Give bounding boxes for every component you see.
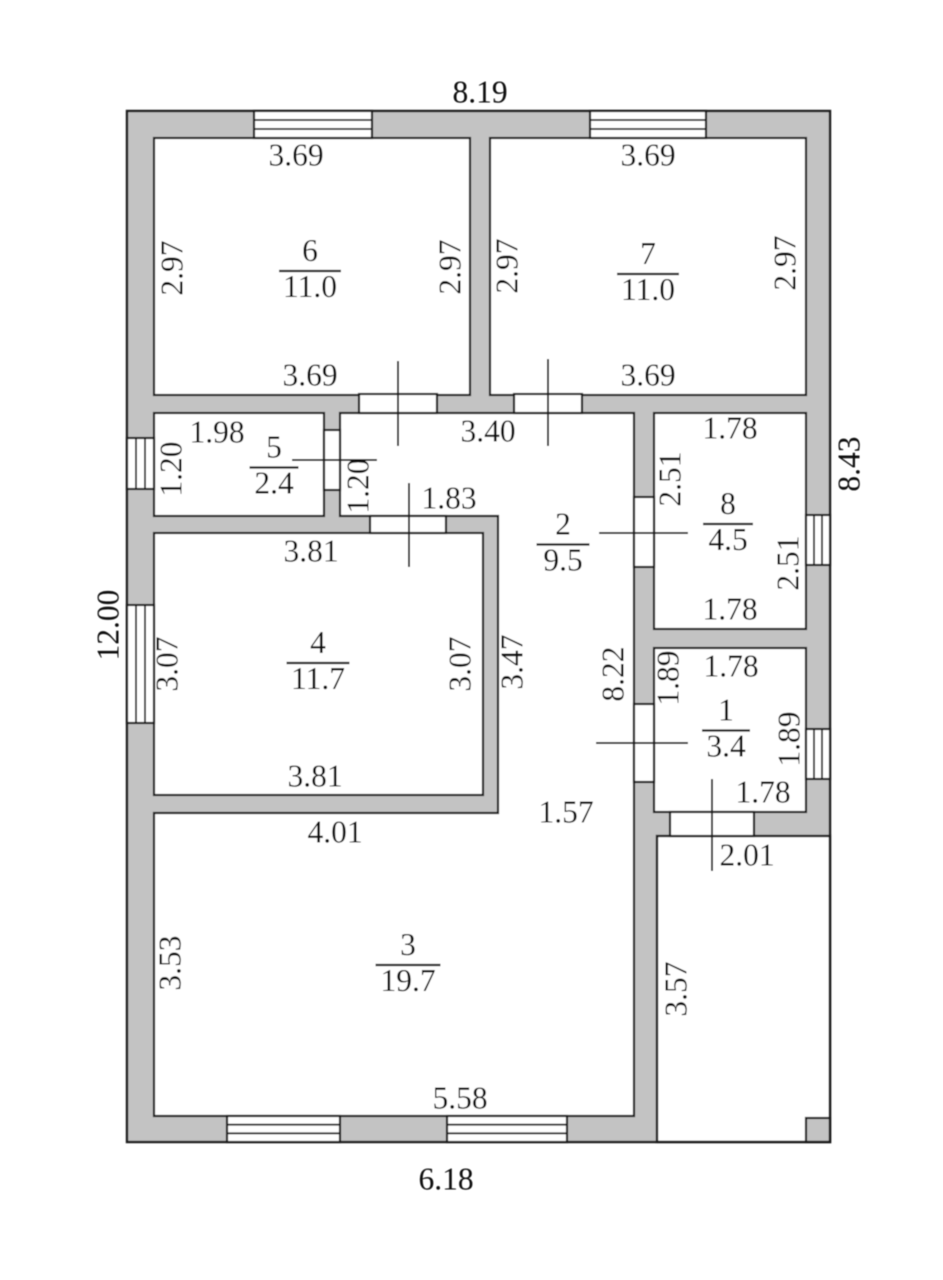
svg-text:11.0: 11.0 [621,272,675,307]
svg-text:2.51: 2.51 [653,451,688,506]
svg-text:3.69: 3.69 [620,358,675,393]
svg-text:5: 5 [266,430,282,465]
svg-text:8.19: 8.19 [452,75,507,110]
svg-text:8: 8 [720,486,736,521]
svg-text:2.51: 2.51 [771,535,806,590]
svg-text:1.78: 1.78 [703,649,758,684]
svg-text:1: 1 [718,693,734,728]
svg-text:2.01: 2.01 [719,838,774,873]
svg-text:3.69: 3.69 [282,358,337,393]
svg-text:4.5: 4.5 [708,522,747,557]
svg-text:2.4: 2.4 [254,466,294,501]
svg-text:1.98: 1.98 [189,415,244,450]
svg-text:1.78: 1.78 [735,775,790,810]
svg-text:7: 7 [640,236,656,271]
svg-text:1.89: 1.89 [651,650,686,705]
svg-text:2.97: 2.97 [433,239,468,294]
svg-text:3.53: 3.53 [153,935,188,990]
svg-text:1.78: 1.78 [702,411,757,446]
svg-text:3.57: 3.57 [659,961,694,1016]
svg-text:3.81: 3.81 [287,759,342,794]
svg-text:1.83: 1.83 [421,481,476,516]
svg-text:19.7: 19.7 [380,963,435,998]
svg-text:4.01: 4.01 [307,815,362,850]
svg-text:5.58: 5.58 [432,1081,487,1116]
svg-text:1.89: 1.89 [772,711,807,766]
svg-text:2.97: 2.97 [768,235,803,290]
svg-text:3.69: 3.69 [620,138,675,173]
svg-text:3.4: 3.4 [706,729,746,764]
svg-text:3.81: 3.81 [283,534,338,569]
svg-text:4: 4 [310,625,326,660]
svg-text:11.0: 11.0 [283,269,337,304]
svg-text:3.07: 3.07 [443,636,478,691]
svg-text:2.97: 2.97 [490,238,525,293]
svg-text:3.40: 3.40 [460,414,515,449]
svg-text:2.97: 2.97 [155,240,190,295]
svg-text:1.20: 1.20 [341,458,376,513]
svg-text:1.78: 1.78 [702,592,757,627]
svg-text:12.00: 12.00 [91,590,126,661]
svg-text:6.18: 6.18 [418,1162,473,1197]
svg-text:2: 2 [555,507,571,542]
svg-text:1.57: 1.57 [538,795,593,830]
svg-text:9.5: 9.5 [543,543,582,578]
svg-text:3.47: 3.47 [495,634,530,689]
svg-text:8.43: 8.43 [832,436,867,491]
svg-text:3: 3 [400,927,416,962]
svg-text:11.7: 11.7 [291,661,345,696]
svg-text:8.22: 8.22 [596,646,631,701]
svg-text:3.07: 3.07 [150,636,185,691]
svg-text:1.20: 1.20 [154,441,189,496]
svg-text:3.69: 3.69 [268,138,323,173]
svg-text:6: 6 [302,233,318,268]
